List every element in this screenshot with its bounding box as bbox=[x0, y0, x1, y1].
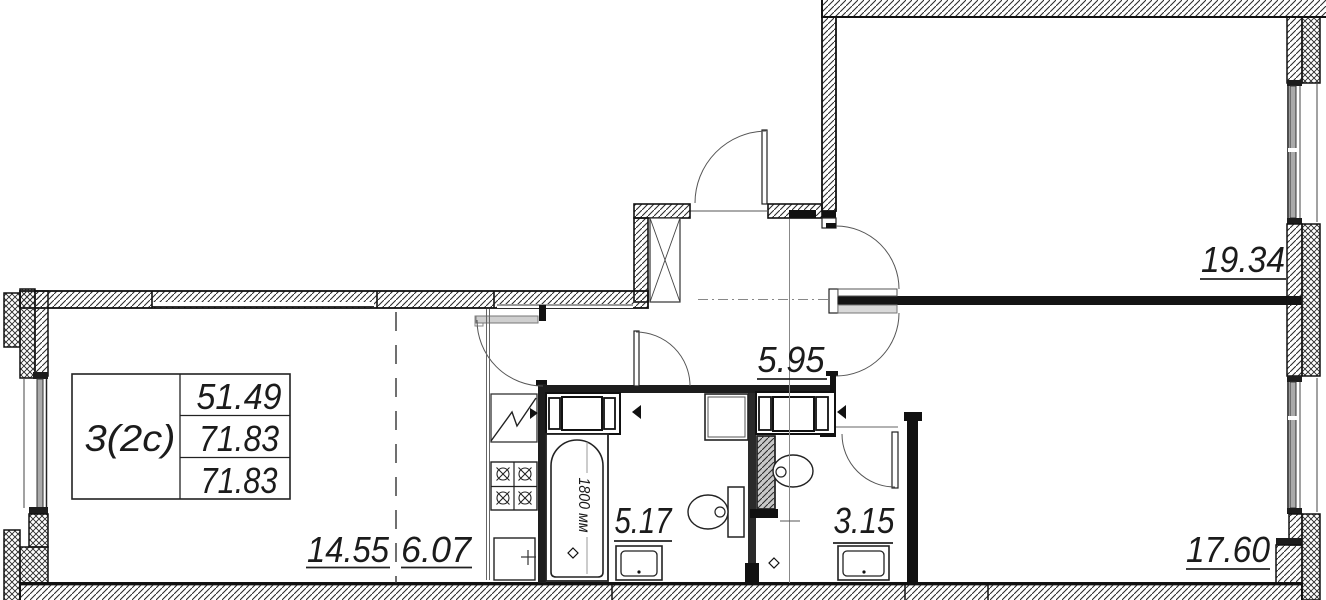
svg-text:6.07: 6.07 bbox=[401, 529, 473, 570]
svg-text:71.83: 71.83 bbox=[199, 418, 279, 459]
svg-text:3(2c): 3(2c) bbox=[85, 418, 176, 459]
svg-text:19.34: 19.34 bbox=[1201, 239, 1285, 280]
svg-text:17.60: 17.60 bbox=[1186, 529, 1270, 570]
svg-text:5.17: 5.17 bbox=[615, 500, 674, 541]
svg-text:1800 мм: 1800 мм bbox=[575, 478, 592, 533]
svg-text:5.95: 5.95 bbox=[758, 339, 826, 380]
svg-text:14.55: 14.55 bbox=[307, 529, 390, 570]
svg-text:51.49: 51.49 bbox=[197, 376, 282, 417]
svg-text:3.15: 3.15 bbox=[834, 500, 896, 541]
svg-text:71.83: 71.83 bbox=[201, 460, 278, 501]
